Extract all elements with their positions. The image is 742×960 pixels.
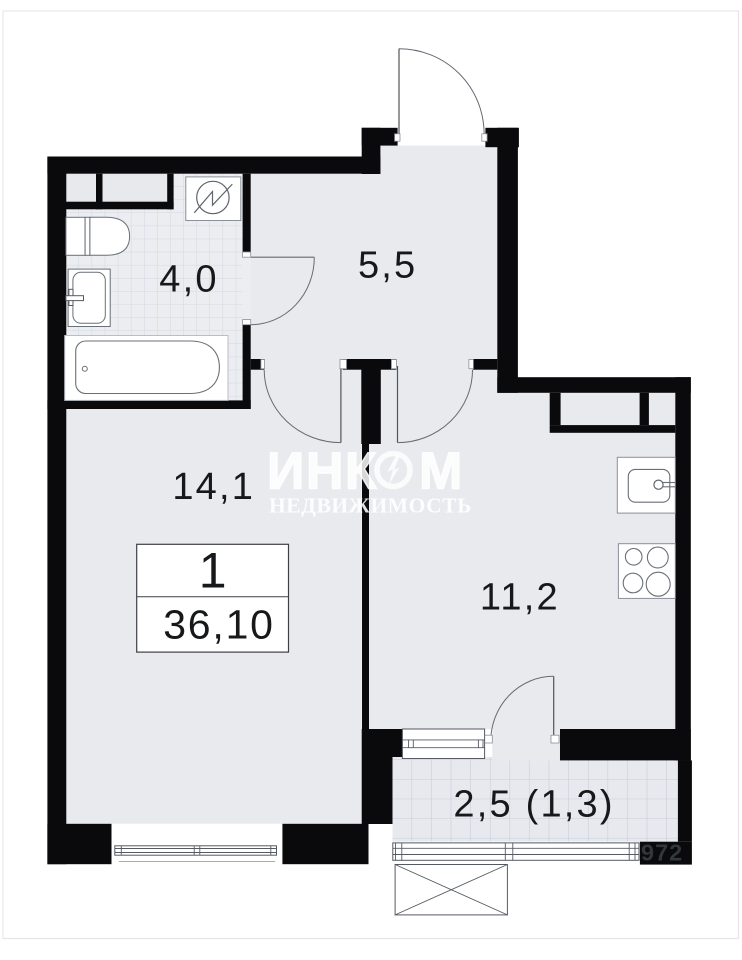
svg-text:М: М xyxy=(419,443,462,501)
svg-text:4,0: 4,0 xyxy=(159,259,218,301)
svg-text:НЕДВИЖИМОСТЬ: НЕДВИЖИМОСТЬ xyxy=(269,494,472,518)
svg-text:ИНК: ИНК xyxy=(267,443,378,501)
svg-text:14,1: 14,1 xyxy=(172,466,255,508)
svg-text:1: 1 xyxy=(199,542,227,598)
svg-text:972: 972 xyxy=(641,840,683,866)
svg-text:11,2: 11,2 xyxy=(480,577,560,619)
svg-text:2,5 (1,3): 2,5 (1,3) xyxy=(453,784,614,826)
svg-text:5,5: 5,5 xyxy=(358,245,417,287)
svg-text:36,10: 36,10 xyxy=(163,602,275,648)
